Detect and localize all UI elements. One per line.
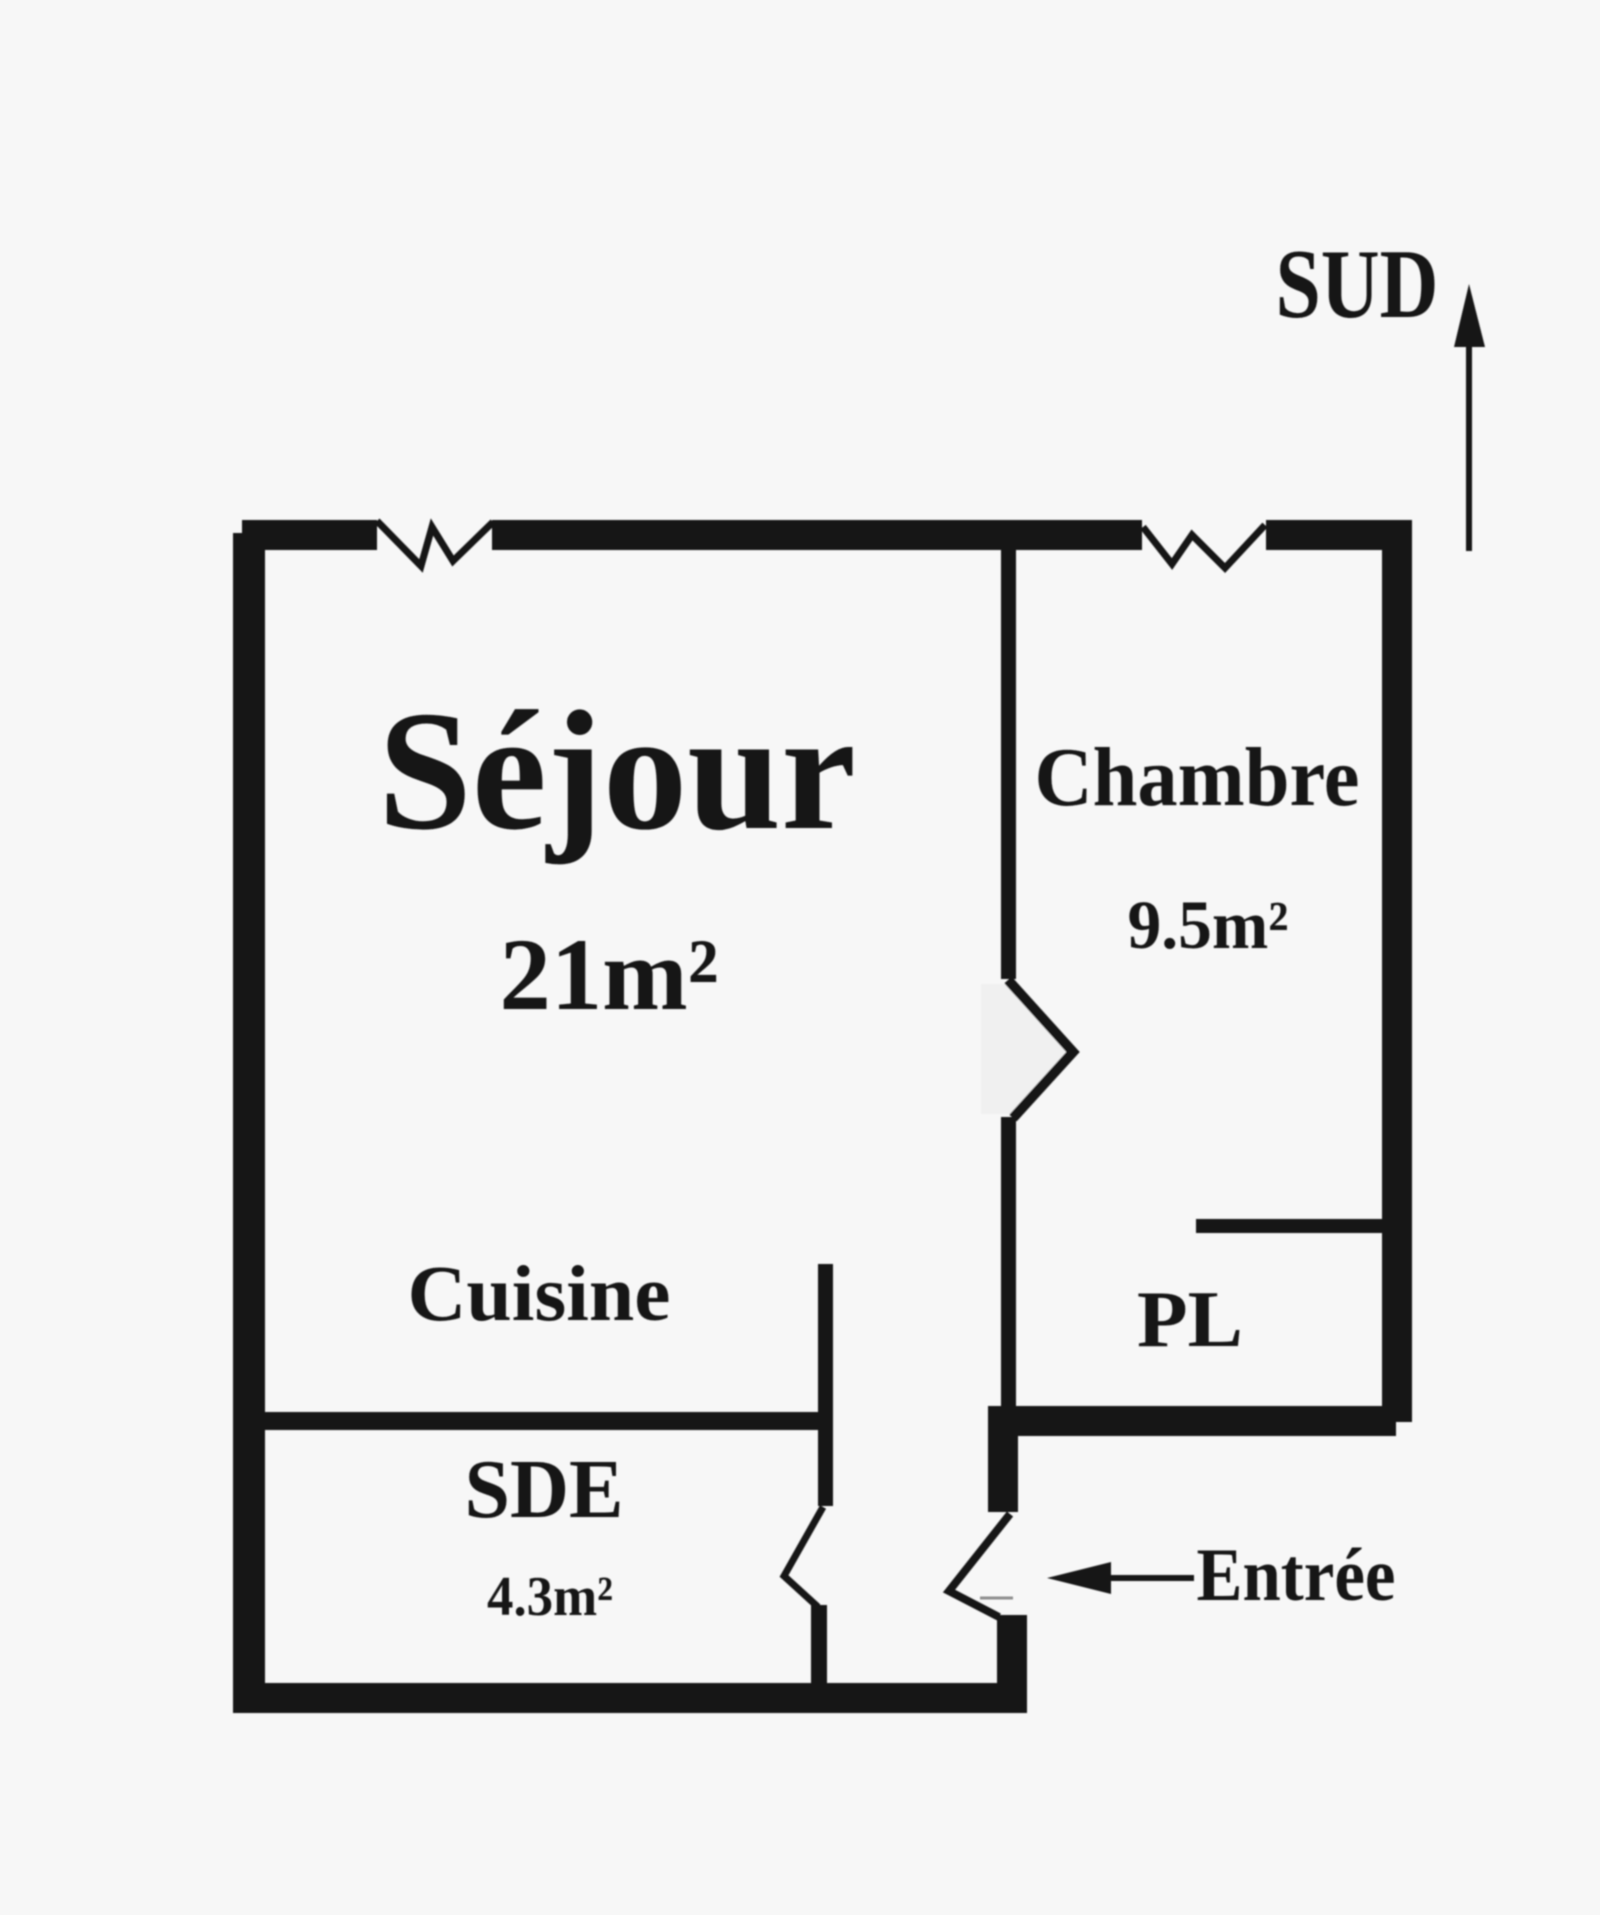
svg-text:Séjour: Séjour <box>378 676 856 865</box>
svg-text:9.5m²: 9.5m² <box>1128 887 1289 963</box>
svg-text:SUD: SUD <box>1276 230 1439 339</box>
svg-text:4.3m²: 4.3m² <box>487 1566 613 1628</box>
svg-text:Cuisine: Cuisine <box>408 1251 671 1338</box>
svg-text:PL: PL <box>1137 1274 1243 1364</box>
svg-text:Chambre: Chambre <box>1035 731 1360 824</box>
svg-text:Entrée: Entrée <box>1197 1534 1396 1617</box>
svg-text:SDE: SDE <box>465 1443 624 1536</box>
svg-text:21m²: 21m² <box>500 918 719 1032</box>
